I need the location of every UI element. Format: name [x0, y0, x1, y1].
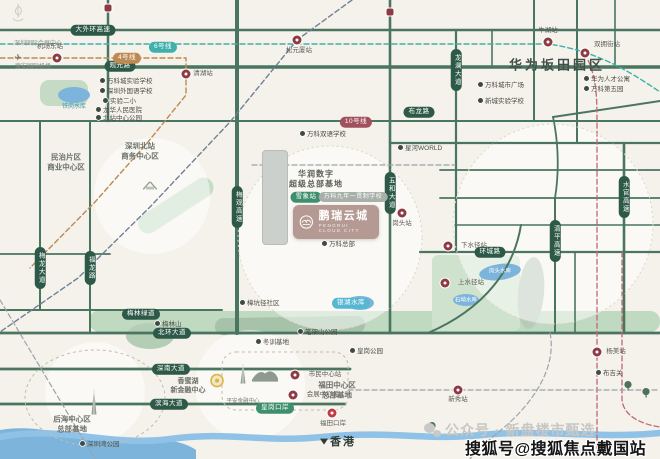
station-label: 新秀站 — [448, 396, 468, 404]
area-label: 深圳北站商务中心区 — [121, 141, 159, 161]
poi-text: 梅林山 — [162, 318, 182, 328]
project-badge-text: 鹏瑞云城 PENGRUI CLOUD CITY — [319, 211, 373, 233]
metro-label-pill: 10号线 — [340, 117, 372, 128]
poi-icon — [584, 76, 589, 81]
poi-label: 华为人才公寓 — [584, 73, 630, 83]
area-label: 香蜜湖新金融中心 — [171, 377, 206, 395]
landmark-plane-icon: ✈ — [14, 47, 22, 68]
poi-text: 布吉关 — [603, 367, 623, 377]
poi-icon — [322, 241, 327, 246]
metro-station-marker — [289, 391, 298, 400]
road-label-pill: 大外环高速 — [71, 25, 116, 36]
station-label: 松元厦站 — [286, 47, 312, 55]
metro-station-marker — [454, 386, 463, 395]
station-label: 双拥街站 — [594, 41, 620, 49]
poi-icon — [478, 98, 483, 103]
metro-station-marker — [398, 209, 407, 218]
poi-text: 樟坑径社区 — [247, 297, 280, 307]
landmark-tower-icon — [90, 389, 98, 422]
poi-icon — [478, 82, 483, 87]
poi-icon — [584, 86, 589, 91]
road-label-pill: 深南大道 — [152, 364, 190, 375]
poi-icon — [298, 329, 303, 334]
metro-station-marker — [593, 348, 602, 357]
area-label: 后海中心区总部基地 — [53, 414, 91, 434]
metro-station-marker — [544, 38, 553, 47]
metro-label-pill: 雪象站 — [291, 192, 322, 203]
poi-icon — [96, 107, 101, 112]
area-label: 民治片区商业中心区 — [47, 152, 85, 172]
poi-label: 梅林山 — [155, 318, 182, 328]
metro-label-pill: 万科九年一贯制学校 — [319, 192, 388, 202]
area-label: 福田中心区总部基地 — [318, 380, 356, 400]
poi-icon — [155, 321, 160, 326]
landmark-tower-icon — [239, 364, 247, 391]
area-label: 华为坂田园区 — [509, 58, 605, 75]
road-label-pill: 清平高速 — [550, 220, 561, 262]
station-label: 牛湖站 — [538, 27, 558, 35]
landmark-ferry-icon — [320, 431, 328, 452]
area-label: 华润数字超级总部基地 — [289, 170, 343, 191]
road-label-pill: 梅观高速 — [232, 186, 243, 228]
area-label: 香港 — [330, 435, 356, 449]
poi-icon — [103, 98, 108, 103]
poi-text: 新城实验学校 — [485, 95, 524, 105]
station-label: 福田口岸 — [320, 420, 346, 428]
road-label-pill: 梅龙大道 — [35, 247, 46, 289]
poi-label: 万科总部 — [322, 238, 355, 248]
landmark-roof-icon — [252, 370, 278, 391]
poi-text: 万科总部 — [329, 238, 355, 248]
project-subtitle: PENGRUI CLOUD CITY — [319, 224, 373, 233]
poi-text: 万科第五园 — [591, 83, 624, 93]
station-label: 下水径站 — [461, 242, 487, 250]
poi-icon — [96, 115, 101, 120]
project-name: 鹏瑞云城 — [319, 211, 373, 222]
poi-label: 北站中心公园 — [96, 112, 142, 122]
station-label: 上水径站 — [458, 279, 484, 287]
road-label-pill: 北环大道 — [153, 328, 191, 339]
poi-icon — [80, 441, 85, 446]
poi-text: 万科城市广场 — [485, 79, 524, 89]
poi-text: 冬训基地 — [263, 336, 289, 346]
road-label-pill: 水官高速 — [619, 176, 630, 218]
map-canvas: 大外环高速观光路布龙路环城路梅林绿道北环大道深南大道滨海大道梅观高速五和大道清平… — [0, 0, 660, 459]
poi-label: 万科城市广场 — [478, 79, 524, 89]
metro-label-pill: 皇岗口岸 — [256, 403, 294, 414]
metro-station-badge — [105, 5, 112, 12]
metro-station-marker — [182, 70, 191, 79]
poi-icon — [100, 78, 105, 83]
metro-station-marker — [293, 36, 302, 45]
poi-icon — [300, 131, 305, 136]
area-label: 平安金融中心 — [226, 398, 259, 405]
poi-icon — [596, 370, 601, 375]
poi-label: 万科双语学校 — [300, 128, 346, 138]
road-label-pill: 福龙路 — [85, 251, 96, 285]
metro-station-marker — [328, 409, 337, 418]
project-logo-icon — [299, 212, 314, 232]
poi-label: 笔架山公园 — [298, 326, 338, 336]
poi-label: 冬训基地 — [256, 336, 289, 346]
metro-station-marker — [53, 54, 62, 63]
station-label: 市民中心站 — [309, 371, 342, 379]
poi-text: 北站中心公园 — [103, 112, 142, 122]
headquarters-block — [262, 150, 288, 245]
road-label-pill: 龙澜大道 — [451, 49, 462, 91]
station-label: 杨美站 — [606, 348, 626, 356]
poi-icon — [240, 300, 245, 305]
poi-label: 万科城实验学校 — [100, 75, 153, 85]
area-label: 铁岗水库 — [62, 104, 86, 112]
area-label: 石坳水库 — [455, 297, 477, 304]
metro-station-badge — [387, 9, 394, 16]
landmark-gold-icon — [210, 374, 224, 395]
poi-label: 深圳外国语学校 — [100, 85, 153, 95]
poi-label: 万科第五园 — [584, 83, 624, 93]
metro-label-pill: 6号线 — [149, 42, 177, 53]
landmark-sail-icon — [10, 3, 26, 30]
landmark-trainstation-icon — [143, 176, 157, 197]
poi-text: 星河WORLD — [405, 142, 442, 152]
poi-text: 深圳湾公园 — [87, 438, 120, 448]
station-label: 清湖站 — [193, 70, 213, 78]
poi-icon — [350, 348, 355, 353]
poi-text: 深圳外国语学校 — [107, 85, 153, 95]
metro-station-marker — [441, 279, 450, 288]
wechat-bubbles-icon — [424, 423, 441, 437]
poi-label: 皇岗公园 — [350, 345, 383, 355]
poi-text: 皇岗公园 — [357, 345, 383, 355]
poi-icon — [398, 145, 403, 150]
poi-icon — [256, 339, 261, 344]
metro-label-pill: 银湖水库 — [332, 298, 370, 309]
poi-label: 布吉关 — [596, 367, 623, 377]
poi-label: 星河WORLD — [398, 142, 442, 152]
metro-station-marker — [581, 49, 590, 58]
watermark-sohu: 搜狐号@搜狐焦点戴国站 — [465, 435, 646, 459]
poi-label: 深圳湾公园 — [80, 438, 120, 448]
poi-text: 华为人才公寓 — [591, 73, 630, 83]
landmark-tree-icon — [624, 377, 633, 398]
project-badge: 鹏瑞云城 PENGRUI CLOUD CITY — [293, 205, 379, 239]
metro-station-marker — [291, 371, 300, 380]
metro-station-marker — [444, 242, 453, 251]
poi-label: 樟坑径社区 — [240, 297, 280, 307]
poi-text: 万科城实验学校 — [107, 75, 153, 85]
landmark-tree-icon — [642, 384, 651, 405]
metro-label-pill: 4号线 — [113, 53, 141, 64]
area-label: 岗头水库 — [489, 268, 511, 275]
station-label: 岗头站 — [392, 220, 412, 228]
poi-text: 笔架山公园 — [305, 326, 338, 336]
poi-icon — [100, 88, 105, 93]
poi-label: 新城实验学校 — [478, 95, 524, 105]
road-label-pill: 滨海大道 — [150, 399, 188, 410]
road-label-pill: 布龙路 — [404, 107, 435, 118]
poi-text: 万科双语学校 — [307, 128, 346, 138]
